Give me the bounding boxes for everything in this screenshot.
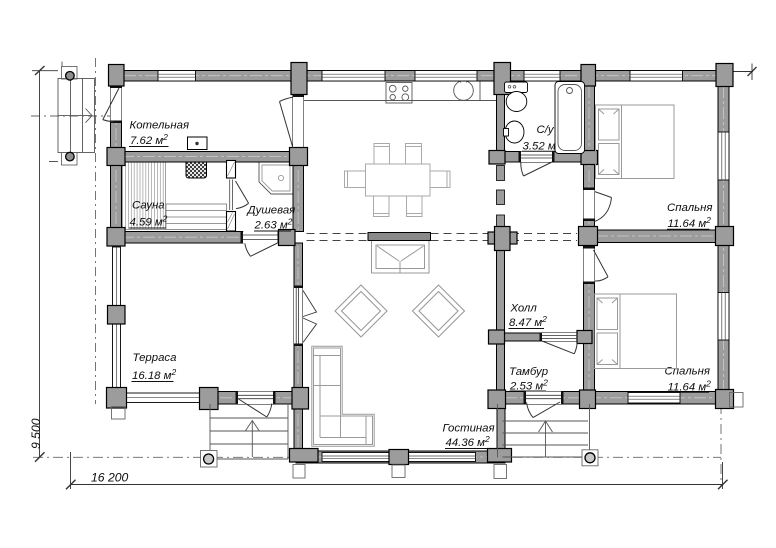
svg-text:Спальня: Спальня: [667, 202, 712, 214]
svg-text:11.64 м2: 11.64 м2: [668, 215, 712, 230]
svg-text:Котельная: Котельная: [130, 120, 190, 132]
svg-text:С/у: С/у: [537, 124, 555, 136]
svg-text:Спальня: Спальня: [665, 366, 710, 378]
svg-text:11.64 м2: 11.64 м2: [668, 379, 712, 394]
svg-text:7.62 м2: 7.62 м2: [130, 132, 168, 147]
svg-text:4.59 м2: 4.59 м2: [130, 214, 168, 229]
svg-text:44.36 м2: 44.36 м2: [446, 434, 490, 449]
svg-text:16.18 м2: 16.18 м2: [132, 367, 176, 382]
svg-text:2.53 м2: 2.53 м2: [509, 378, 548, 393]
svg-text:Тамбур: Тамбур: [509, 366, 548, 378]
svg-text:Сауна: Сауна: [132, 200, 165, 212]
svg-text:Душевая: Душевая: [246, 205, 296, 217]
svg-text:Терраса: Терраса: [133, 352, 177, 364]
svg-text:8.47 м2: 8.47 м2: [509, 314, 547, 329]
svg-text:16 200: 16 200: [91, 471, 128, 485]
svg-text:9 500: 9 500: [29, 418, 43, 449]
svg-text:Холл: Холл: [510, 303, 538, 315]
svg-text:Гостиная: Гостиная: [443, 423, 495, 435]
svg-text:2.63 м2: 2.63 м2: [254, 217, 293, 232]
